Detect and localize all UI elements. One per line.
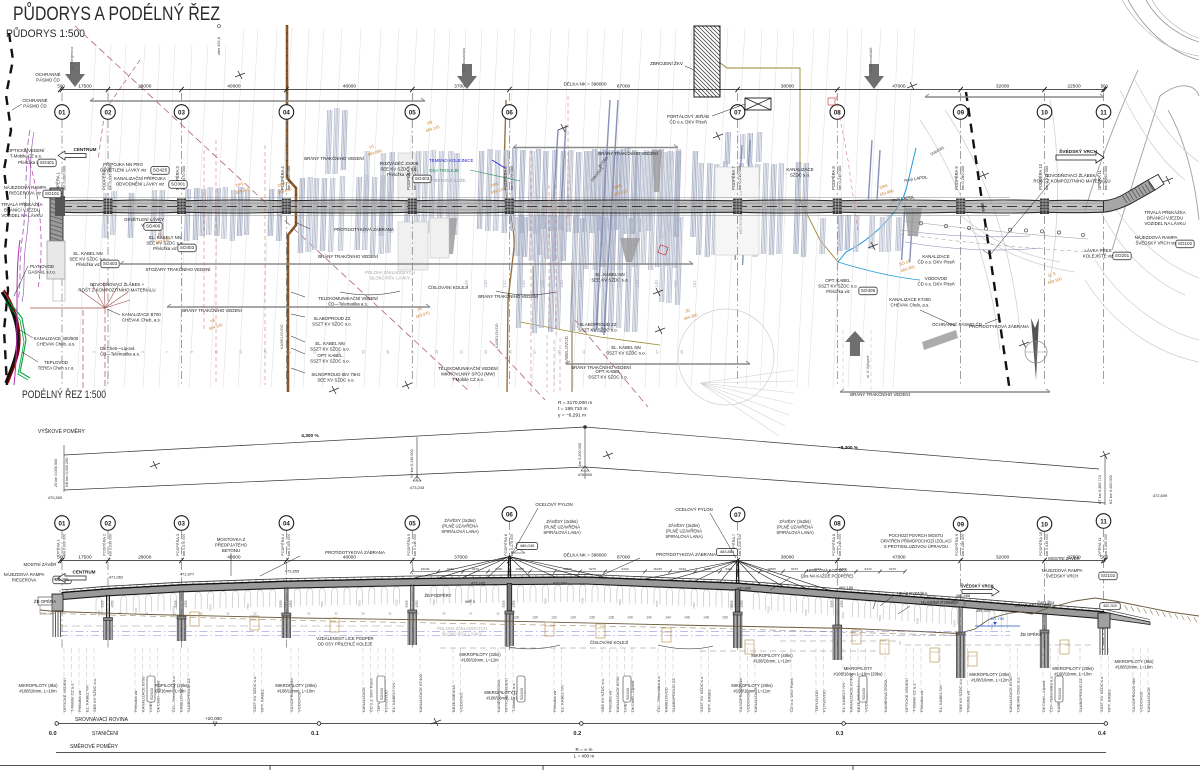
svg-text:LÁVKA PŘES: LÁVKA PŘES [1084, 248, 1111, 253]
svg-text:SO403: SO403 [150, 688, 154, 700]
svg-text:SSZT KV SŽDC s.o.: SSZT KV SŽDC s.o. [252, 676, 257, 712]
svg-text:19: 19 [313, 350, 317, 354]
svg-text:4,300 %: 4,300 % [301, 433, 319, 439]
svg-text:BRÁNÍCÍ VJEZDU: BRÁNÍCÍ VJEZDU [4, 208, 40, 213]
svg-text:ROŠT Z KOMPOZITNÍHO MATERIÁLU: ROŠT Z KOMPOZITNÍHO MATERIÁLU [1033, 179, 1110, 184]
svg-text:V2 km 0,136 600: V2 km 0,136 600 [410, 449, 414, 478]
svg-text:PODPĚRA 5: PODPĚRA 5 [406, 534, 411, 556]
svg-text:148: 148 [654, 280, 659, 288]
svg-text:02: 02 [105, 520, 112, 527]
svg-text:11: 11 [1100, 109, 1107, 116]
svg-text:OCELOVÝ PYLON: OCELOVÝ PYLON [675, 507, 712, 512]
svg-text:132: 132 [502, 280, 507, 288]
svg-text:#108/16mm, L=12m: #108/16mm, L=12m [971, 677, 1009, 682]
svg-text:ŠVÉDSKÝ VRCH: ŠVÉDSKÝ VRCH [960, 584, 993, 589]
svg-text:4350: 4350 [111, 600, 115, 607]
svg-text:ČÍSLOVÁNÍ KOLEJÍ: ČÍSLOVÁNÍ KOLEJÍ [590, 640, 629, 645]
svg-text:TEPLOVOD: TEPLOVOD [44, 360, 68, 365]
svg-text:t = 199,710 m: t = 199,710 m [558, 406, 587, 412]
svg-text:ul. Riegerova: ul. Riegerova [70, 46, 74, 69]
svg-text:km 0,315 000: km 0,315 000 [1045, 534, 1049, 556]
svg-text:(PLNĚ UZAVŘENÁ: (PLNĚ UZAVŘENÁ [666, 528, 702, 533]
svg-text:OSVĚTLENÍ LÁVKY: OSVĚTLENÍ LÁVKY [124, 217, 164, 222]
svg-text:32: 32 [334, 612, 338, 616]
svg-text:KABELOVOD: KABELOVOD [179, 687, 184, 712]
svg-text:9440: 9440 [725, 567, 732, 571]
svg-text:470,880: 470,880 [737, 586, 752, 591]
svg-text:20 km 0,000 000: 20 km 0,000 000 [54, 459, 58, 487]
svg-text:472,855: 472,855 [285, 569, 300, 574]
svg-text:MIKROPILOTY (20ks): MIKROPILOTY (20ks) [275, 683, 317, 688]
svg-text:SILNOPROUD 6kV 75Hz: SILNOPROUD 6kV 75Hz [311, 372, 360, 377]
svg-text:ČD o.s. DKV Plzeň: ČD o.s. DKV Plzeň [789, 678, 794, 712]
svg-text:VODOTEČ: VODOTEČ [459, 692, 464, 712]
svg-text:32: 32 [172, 612, 176, 616]
svg-text:52: 52 [415, 612, 419, 616]
svg-text:7500: 7500 [990, 623, 994, 630]
svg-text:PŘEDPJATÉHO: PŘEDPJATÉHO [215, 543, 248, 548]
svg-text:17500: 17500 [78, 555, 92, 561]
svg-text:ČD—Telematika a.s.: ČD—Telematika a.s. [1049, 676, 1054, 712]
svg-text:BLOKŮ PŮV. LÁVKY: BLOKŮ PŮV. LÁVKY [370, 275, 410, 280]
svg-text:ROŠT Z KOMPOZITNÍHO MATERIÁLU: ROŠT Z KOMPOZITNÍHO MATERIÁLU [78, 288, 155, 293]
svg-text:Přeložka viz: Přeložka viz [826, 289, 850, 294]
svg-text:7500: 7500 [878, 615, 882, 622]
svg-text:VODOVOD: VODOVOD [1139, 691, 1144, 712]
svg-text:ZÁVĚSY (3x2ks): ZÁVĚSY (3x2ks) [444, 518, 476, 523]
svg-text:EL. KABEL NN: EL. KABEL NN [611, 345, 640, 350]
svg-text:40000: 40000 [227, 84, 241, 90]
svg-text:17: 17 [288, 350, 292, 354]
svg-text:462,300: 462,300 [1103, 604, 1117, 608]
svg-text:KAMENNÁ ZÍDKA: KAMENNÁ ZÍDKA [496, 679, 501, 712]
svg-text:SMĚROVÉ POMĚRY: SMĚROVÉ POMĚRY [70, 742, 119, 750]
svg-text:km 0,350 000: km 0,350 000 [1103, 165, 1108, 190]
svg-text:7500: 7500 [915, 617, 919, 624]
svg-text:SO403: SO403 [862, 688, 866, 700]
svg-text:NÁJEZDOVÁ RAMPA: NÁJEZDOVÁ RAMPA [4, 185, 47, 190]
svg-text:BEZEJMENNÁ: BEZEJMENNÁ [451, 685, 456, 712]
svg-text:MIKROPILOTY (8ks): MIKROPILOTY (8ks) [18, 683, 58, 688]
svg-text:#108/16mm, L=10m: #108/16mm, L=10m [19, 688, 57, 693]
svg-text:PROTIDOTYKOVÁ ZÁBRANA: PROTIDOTYKOVÁ ZÁBRANA [325, 550, 385, 555]
svg-text:37000: 37000 [454, 555, 468, 561]
svg-text:500: 500 [1101, 84, 1109, 89]
svg-text:SSZT KV SŽDC s.o.: SSZT KV SŽDC s.o. [588, 375, 628, 380]
svg-text:km 0,245 000: km 0,245 000 [837, 165, 842, 190]
svg-text:PÁSMO ČD: PÁSMO ČD [36, 78, 59, 83]
svg-text:470,300: 470,300 [48, 495, 63, 500]
svg-text:136: 136 [589, 616, 595, 620]
svg-text:km 0,070 000: km 0,070 000 [182, 534, 186, 556]
svg-text:SSZT KV SŽDC s.o.: SSZT KV SŽDC s.o. [699, 676, 704, 712]
svg-text:45: 45 [631, 350, 635, 354]
svg-text:BRÁNY TRAKČNÍHO VEDENÍ: BRÁNY TRAKČNÍHO VEDENÍ [182, 308, 242, 313]
svg-text:KANALIZACE KT400: KANALIZACE KT400 [849, 673, 854, 712]
svg-text:43: 43 [607, 350, 611, 354]
svg-text:KANALIZAČNÍ PŘÍPOJKA: KANALIZAČNÍ PŘÍPOJKA [114, 176, 166, 181]
svg-text:KAMENNÁ ZÍDKA: KAMENNÁ ZÍDKA [883, 679, 888, 712]
svg-text:KANALIZACE KT400: KANALIZACE KT400 [889, 297, 931, 302]
svg-text:SROVNÁVACÍ ROVINA: SROVNÁVACÍ ROVINA [75, 716, 129, 723]
svg-text:T-Mobile CZ a.s.: T-Mobile CZ a.s. [511, 683, 516, 712]
svg-text:Přeložka viz: Přeložka viz [77, 690, 82, 712]
svg-text:469,185: 469,185 [839, 585, 854, 590]
svg-text:471,062: 471,062 [109, 575, 124, 580]
svg-text:16865: 16865 [515, 567, 524, 571]
svg-text:ul. K Výtopně: ul. K Výtopně [866, 355, 870, 378]
svg-text:ZBROJENÍ ŽKV: ZBROJENÍ ŽKV [650, 59, 684, 66]
svg-text:25: 25 [386, 350, 390, 354]
svg-text:SLABOPROUD ZZ: SLABOPROUD ZZ [313, 316, 350, 321]
svg-text:CENTRUM: CENTRUM [73, 570, 96, 575]
svg-text:KT km 0,389 710: KT km 0,389 710 [1098, 475, 1102, 504]
svg-text:22500: 22500 [1067, 84, 1081, 90]
svg-text:10: 10 [1041, 109, 1048, 116]
svg-text:#108/16mm, L=10m: #108/16mm, L=10m [1115, 664, 1153, 669]
svg-text:SO102: SO102 [1101, 573, 1116, 578]
svg-text:138: 138 [559, 280, 564, 288]
svg-text:ZÁVĚSY (3x2ks): ZÁVĚSY (3x2ks) [546, 519, 578, 524]
svg-text:4350: 4350 [840, 600, 844, 607]
svg-text:MOSTOVKA Z: MOSTOVKA Z [217, 537, 246, 542]
svg-text:06: 06 [506, 109, 513, 116]
svg-text:9440: 9440 [622, 567, 629, 571]
svg-text:BRÁNY TRAKČNÍHO VEDENÍ: BRÁNY TRAKČNÍHO VEDENÍ [318, 254, 378, 259]
svg-text:PODPĚRA 10: PODPĚRA 10 [1038, 163, 1043, 190]
svg-text:SO403: SO403 [520, 688, 524, 700]
svg-text:RIEGEROVA viz: RIEGEROVA viz [9, 191, 41, 196]
svg-text:SSZT KV SŽDC s.o.: SSZT KV SŽDC s.o. [606, 351, 646, 356]
svg-text:38000: 38000 [781, 555, 795, 561]
svg-text:POLOHA ZÁKLADOVÝCH: POLOHA ZÁKLADOVÝCH [437, 626, 487, 631]
svg-text:7500: 7500 [432, 599, 436, 606]
svg-text:5335: 5335 [953, 600, 957, 607]
svg-text:(PLNĚ UZAVŘENÁ: (PLNĚ UZAVŘENÁ [777, 524, 813, 529]
svg-text:4350: 4350 [512, 600, 516, 607]
svg-text:08: 08 [834, 520, 841, 527]
svg-text:T-Mobile CZ a.s.: T-Mobile CZ a.s. [10, 154, 42, 159]
svg-text:T-Mobile CZ a.s.: T-Mobile CZ a.s. [70, 683, 75, 712]
svg-text:km 0,140 000: km 0,140 000 [413, 534, 417, 556]
svg-text:SEE KV SŽDC s.o.: SEE KV SŽDC s.o. [958, 678, 963, 712]
svg-text:SO102: SO102 [1178, 241, 1193, 246]
svg-text:87000: 87000 [617, 555, 631, 561]
svg-text:132: 132 [551, 616, 557, 620]
svg-text:5335: 5335 [101, 600, 105, 607]
svg-text:ROZVÁDĚČ ZS208: ROZVÁDĚČ ZS208 [380, 161, 419, 166]
svg-text:ŠVÉDSKÝ VRCH viz: ŠVÉDSKÝ VRCH viz [1136, 241, 1177, 246]
svg-text:Přeložka viz: Přeložka viz [387, 172, 411, 177]
svg-text:SEE KV SŽDC s.o.: SEE KV SŽDC s.o. [380, 167, 417, 172]
svg-text:51: 51 [145, 612, 149, 616]
svg-text:ČD o.s. DKV Plzeň: ČD o.s. DKV Plzeň [917, 282, 955, 287]
svg-text:DÉLKA NK = 398000: DÉLKA NK = 398000 [563, 552, 606, 558]
svg-text:47000: 47000 [892, 84, 906, 90]
svg-text:SSZT KV SŽDC s.o.: SSZT KV SŽDC s.o. [578, 328, 618, 333]
svg-text:SILNOPROUD 6kV: SILNOPROUD 6kV [738, 677, 743, 712]
svg-text:29: 29 [435, 350, 439, 354]
svg-text:km 0,245 000: km 0,245 000 [838, 534, 842, 556]
svg-text:9270: 9270 [791, 567, 798, 571]
svg-text:47000: 47000 [892, 555, 906, 561]
svg-text:SO401: SO401 [40, 160, 55, 165]
svg-text:MIKROPILOTY (20ks): MIKROPILOTY (20ks) [969, 672, 1011, 677]
svg-text:SO406: SO406 [861, 288, 876, 293]
svg-text:SPIRÁLOVÁ LANA): SPIRÁLOVÁ LANA) [441, 529, 479, 534]
svg-text:BRÁNY TRAKČNÍHO VEDENÍ: BRÁNY TRAKČNÍHO VEDENÍ [598, 151, 658, 156]
svg-text:OPT. KABEL: OPT. KABEL [260, 688, 265, 712]
svg-text:CHEVAK Cheb, a.s.: CHEVAK Cheb, a.s. [122, 318, 161, 323]
svg-text:05: 05 [409, 520, 416, 527]
svg-text:SO403: SO403 [415, 176, 430, 181]
svg-text:KANALIZACE: KANALIZACE [753, 687, 758, 712]
svg-text:52: 52 [253, 612, 257, 616]
svg-text:EL. KABEL NN: EL. KABEL NN [560, 685, 565, 712]
svg-text:ČD—Telematika a.s.: ČD—Telematika a.s. [171, 676, 176, 712]
svg-text:SSZT KV SŽDC s.o.: SSZT KV SŽDC s.o. [310, 359, 350, 364]
svg-text:SSZT KV SŽDC s.o.: SSZT KV SŽDC s.o. [1099, 676, 1104, 712]
svg-text:144: 144 [616, 280, 621, 288]
svg-text:21: 21 [337, 350, 341, 354]
svg-text:464,203: 464,203 [1040, 600, 1055, 605]
svg-text:OCELOVÝ PYLON: OCELOVÝ PYLON [535, 502, 572, 507]
svg-text:KABELOVOD: KABELOVOD [279, 324, 284, 349]
svg-text:KOLEJIŠTĚ viz: KOLEJIŠTĚ viz [1083, 254, 1113, 259]
svg-text:VODOVOD: VODOVOD [925, 276, 947, 281]
svg-text:ZÁVĚSY (3x2ks): ZÁVĚSY (3x2ks) [779, 519, 811, 524]
svg-text:16245: 16245 [653, 567, 662, 571]
svg-text:PODPĚRA 6: PODPĚRA 6 [503, 534, 508, 556]
svg-text:ŽB OPĚRA: ŽB OPĚRA [1020, 632, 1041, 637]
svg-text:CHEVAK Cheb, a.s.: CHEVAK Cheb, a.s. [1016, 677, 1021, 713]
svg-text:ČD o.s. DKV Plzeň: ČD o.s. DKV Plzeň [669, 120, 707, 125]
svg-text:128: 128 [464, 280, 469, 288]
svg-text:5335: 5335 [174, 600, 178, 607]
svg-text:km 0,210 000: km 0,210 000 [738, 534, 742, 556]
svg-text:KANALIZACE: KANALIZACE [922, 254, 949, 259]
svg-text:07: 07 [734, 512, 741, 519]
svg-text:HRNCOVÁ LOŽISKA: HRNCOVÁ LOŽISKA [807, 568, 847, 573]
svg-text:ŽB OPĚRA: ŽB OPĚRA [34, 599, 56, 604]
svg-text:10: 10 [1041, 521, 1048, 528]
svg-text:PODPĚRA 10: PODPĚRA 10 [1038, 531, 1043, 556]
svg-text:1: 1 [92, 351, 96, 353]
svg-text:SLABOPROUD ZZ: SLABOPROUD ZZ [579, 322, 616, 327]
svg-text:OPT. KABEL: OPT. KABEL [595, 369, 621, 374]
svg-text:138: 138 [608, 616, 614, 620]
svg-text:MIKROVLNNÝ SPOJ (MW): MIKROVLNNÝ SPOJ (MW) [441, 372, 495, 377]
svg-text:Dk Cheb—Lipová: Dk Cheb—Lipová [100, 346, 135, 351]
svg-text:OPĚRA 1: OPĚRA 1 [56, 171, 61, 190]
svg-text:NÁJEZDOVÁ RAMPA: NÁJEZDOVÁ RAMPA [4, 572, 45, 577]
svg-text:EL. KABEL NN: EL. KABEL NN [595, 272, 624, 277]
svg-text:K2 km 0,400 000: K2 km 0,400 000 [1109, 475, 1113, 504]
svg-text:POCHOZÍ POVRCH MOSTU: POCHOZÍ POVRCH MOSTU [889, 533, 943, 538]
svg-text:km 0,175 000: km 0,175 000 [509, 165, 514, 190]
svg-text:SO301: SO301 [171, 182, 186, 187]
svg-text:01: 01 [59, 109, 66, 116]
svg-text:OSA TROLEJE: OSA TROLEJE [429, 168, 459, 173]
svg-text:0.0: 0.0 [49, 731, 57, 737]
svg-text:CHEVAK Cheb, a.s.: CHEVAK Cheb, a.s. [37, 342, 76, 347]
svg-text:4350: 4350 [184, 600, 188, 607]
svg-text:51: 51 [307, 612, 311, 616]
svg-text:50: 50 [199, 612, 203, 616]
svg-text:MOSTNÍ ZÁVĚR: MOSTNÍ ZÁVĚR [1048, 556, 1079, 561]
svg-text:17500: 17500 [78, 84, 92, 90]
svg-text:KANALIZACE 400/600: KANALIZACE 400/600 [34, 336, 79, 341]
svg-text:7500: 7500 [543, 598, 547, 605]
svg-text:STOŽÁRY TRAKČNÍHO VEDENÍ: STOŽÁRY TRAKČNÍHO VEDENÍ [145, 267, 211, 272]
svg-text:11: 11 [1100, 518, 1107, 525]
svg-text:ŠVÉDSKÝ VRCH: ŠVÉDSKÝ VRCH [1046, 573, 1079, 578]
svg-text:KANALIZACE B700: KANALIZACE B700 [615, 676, 620, 712]
svg-text:7500: 7500 [134, 608, 138, 615]
svg-text:Přeložka viz: Přeložka viz [76, 262, 100, 267]
svg-text:KANALIZACE B700: KANALIZACE B700 [122, 312, 161, 317]
svg-text:T-Mobile CZ a.s.: T-Mobile CZ a.s. [912, 683, 917, 712]
svg-text:VODOVOD: VODOVOD [746, 691, 751, 712]
svg-text:SO403: SO403 [626, 688, 630, 700]
svg-text:PŘÍPOJKA NN PRO: PŘÍPOJKA NN PRO [103, 162, 143, 167]
svg-text:KANALIZACE: KANALIZACE [1146, 687, 1151, 712]
svg-text:9270: 9270 [589, 567, 596, 571]
svg-text:SSZT KV SŽDC s.o.: SSZT KV SŽDC s.o. [312, 322, 352, 327]
svg-text:PROTIDOTYKOVÁ ZÁBRANA: PROTIDOTYKOVÁ ZÁBRANA [334, 227, 394, 232]
svg-text:TEMENO KOLEJNICE: TEMENO KOLEJNICE [429, 158, 473, 163]
svg-text:PODPĚRA 9: PODPĚRA 9 [954, 166, 959, 190]
svg-text:5335: 5335 [279, 600, 283, 607]
svg-text:152: 152 [692, 280, 697, 288]
svg-text:05: 05 [409, 109, 416, 116]
svg-text:NK km 0,000 290: NK km 0,000 290 [65, 458, 69, 487]
svg-text:SO101: SO101 [45, 191, 60, 196]
svg-text:150: 150 [673, 280, 678, 288]
svg-text:470,300: 470,300 [54, 577, 69, 582]
svg-text:EL. KABEL NN: EL. KABEL NN [73, 251, 102, 256]
svg-text:Přeložka viz: Přeložka viz [919, 690, 924, 712]
svg-text:ŠTĚRKOVÉ LOŽE: ŠTĚRKOVÉ LOŽE [429, 178, 466, 183]
svg-text:31: 31 [460, 350, 464, 354]
svg-text:LAPOL: LAPOL [924, 596, 936, 600]
svg-text:NÁJEZDOVÁ RAMPA: NÁJEZDOVÁ RAMPA [1135, 235, 1178, 240]
svg-text:WP 3: WP 3 [465, 599, 475, 604]
svg-text:471,977: 471,977 [180, 572, 195, 577]
svg-text:50: 50 [361, 612, 365, 616]
svg-text:7500: 7500 [246, 603, 250, 610]
svg-text:km 0,000 000: km 0,000 000 [62, 165, 67, 190]
svg-text:OD OSY PŘILEHLÉ KOLEJE: OD OSY PŘILEHLÉ KOLEJE [318, 641, 373, 646]
svg-text:0.4: 0.4 [1098, 731, 1107, 737]
svg-text:483,881: 483,881 [720, 549, 735, 554]
svg-text:28000: 28000 [138, 555, 152, 561]
svg-text:PODPĚRA 3: PODPĚRA 3 [175, 534, 180, 556]
svg-text:ČD—Telematika a.s.: ČD—Telematika a.s. [328, 302, 368, 307]
svg-text:KABELOVOD: KABELOVOD [494, 323, 499, 348]
svg-text:SO403: SO403 [180, 245, 195, 250]
svg-text:EL. KABEL NN: EL. KABEL NN [938, 685, 943, 712]
svg-text:BRÁNY TRAKČNÍHO VEDENÍ: BRÁNY TRAKČNÍHO VEDENÍ [850, 392, 910, 397]
svg-text:MOSTNÍ ZÁVĚR: MOSTNÍ ZÁVĚR [24, 562, 57, 567]
svg-text:KANALIZACE KT400: KANALIZACE KT400 [418, 673, 423, 712]
svg-text:Přeložka viz: Přeložka viz [608, 690, 613, 712]
svg-text:04: 04 [283, 520, 290, 527]
svg-text:SILNOPROUD 6kV: SILNOPROUD 6kV [289, 677, 294, 712]
svg-text:PODPĚRA 8: PODPĚRA 8 [831, 166, 836, 190]
svg-text:OPT. KABEL: OPT. KABEL [1107, 688, 1112, 712]
svg-text:PODPĚRA 7: PODPĚRA 7 [731, 166, 736, 190]
svg-text:EL. KABEL NN: EL. KABEL NN [315, 341, 344, 346]
svg-text:OSVĚTLENÍ LÁVKY viz: OSVĚTLENÍ LÁVKY viz [100, 168, 147, 173]
svg-text:km 0,280 000: km 0,280 000 [961, 534, 965, 556]
svg-text:EL. KABELY NN: EL. KABELY NN [841, 683, 846, 712]
svg-text:DÉLKA NK = 398000: DÉLKA NK = 398000 [563, 81, 606, 87]
svg-text:PORTÁLOVÝ JEŘÁB: PORTÁLOVÝ JEŘÁB [667, 114, 709, 119]
svg-text:27: 27 [411, 350, 415, 354]
svg-text:KABELOVOD: KABELOVOD [564, 335, 569, 364]
svg-text:SILNOPROUD 6kV: SILNOPROUD 6kV [1131, 677, 1136, 712]
svg-text:PODÉLNÝ ŘEZ 1:500: PODÉLNÝ ŘEZ 1:500 [22, 388, 106, 401]
svg-text:EL. KABELY NN: EL. KABELY NN [391, 683, 396, 712]
svg-text:GASNeL s.r.o.: GASNeL s.r.o. [28, 270, 56, 275]
svg-text:ČD—Telematika a.s.: ČD—Telematika a.s. [656, 676, 661, 712]
svg-text:7500: 7500 [581, 597, 585, 604]
svg-text:MIKROPILOTY (20ks): MIKROPILOTY (20ks) [1052, 666, 1094, 671]
svg-text:7500: 7500 [655, 600, 659, 607]
svg-text:KANALIZACE B700: KANALIZACE B700 [141, 676, 146, 712]
svg-text:SPIRÁLOVÁ LANA): SPIRÁLOVÁ LANA) [665, 534, 703, 539]
svg-text:134: 134 [521, 280, 526, 288]
svg-text:SEE KV SŽDC s.o.: SEE KV SŽDC s.o. [92, 678, 97, 712]
svg-text:PLYNOVOD: PLYNOVOD [30, 264, 54, 269]
svg-text:R = ∞ m: R = ∞ m [576, 747, 593, 752]
svg-text:OPTICKÉ VEDENÍ: OPTICKÉ VEDENÍ [8, 148, 46, 153]
svg-text:#108/16mm, L=10m: #108/16mm, L=10m [1054, 671, 1092, 676]
svg-text:KANALIZACE: KANALIZACE [786, 167, 813, 172]
svg-text:16245: 16245 [421, 567, 430, 571]
svg-text:07: 07 [734, 109, 741, 116]
svg-text:0.1: 0.1 [311, 731, 319, 737]
svg-text:VÝŠKOVÉ POMĚRY: VÝŠKOVÉ POMĚRY [38, 427, 86, 435]
svg-text:3: 3 [117, 351, 121, 353]
svg-text:4350: 4350 [963, 600, 967, 607]
svg-text:OPTICKÉ VEDENÍ: OPTICKÉ VEDENÍ [904, 678, 909, 712]
svg-text:SŽDC s.o.: SŽDC s.o. [790, 173, 810, 178]
svg-text:PODPĚRA 9: PODPĚRA 9 [954, 534, 959, 556]
svg-text:48000: 48000 [343, 84, 357, 90]
svg-text:4350: 4350 [740, 600, 744, 607]
svg-text:7500: 7500 [953, 620, 957, 627]
svg-text:SO425: SO425 [153, 168, 168, 173]
svg-text:5: 5 [141, 351, 145, 353]
svg-text:136: 136 [540, 280, 545, 288]
svg-text:Dk Cheb—Lipová: Dk Cheb—Lipová [1041, 680, 1046, 712]
svg-text:7500: 7500 [395, 599, 399, 606]
svg-text:7500: 7500 [209, 604, 213, 611]
svg-text:km 0,105 000: km 0,105 000 [287, 534, 291, 556]
svg-text:47: 47 [656, 350, 660, 354]
svg-text:PŮDORYS 1:500: PŮDORYS 1:500 [6, 27, 85, 40]
svg-text:MIKROPILOTY (40ks): MIKROPILOTY (40ks) [751, 653, 793, 658]
svg-text:11: 11 [215, 350, 219, 354]
svg-text:37: 37 [533, 350, 537, 354]
svg-text:473,245: 473,245 [471, 581, 486, 586]
svg-text:09: 09 [957, 521, 964, 528]
svg-text:OCHRANNÉ PÁSMO ČD: OCHRANNÉ PÁSMO ČD [932, 322, 982, 327]
svg-text:500: 500 [57, 84, 65, 89]
svg-text:BETONU: BETONU [222, 548, 240, 553]
